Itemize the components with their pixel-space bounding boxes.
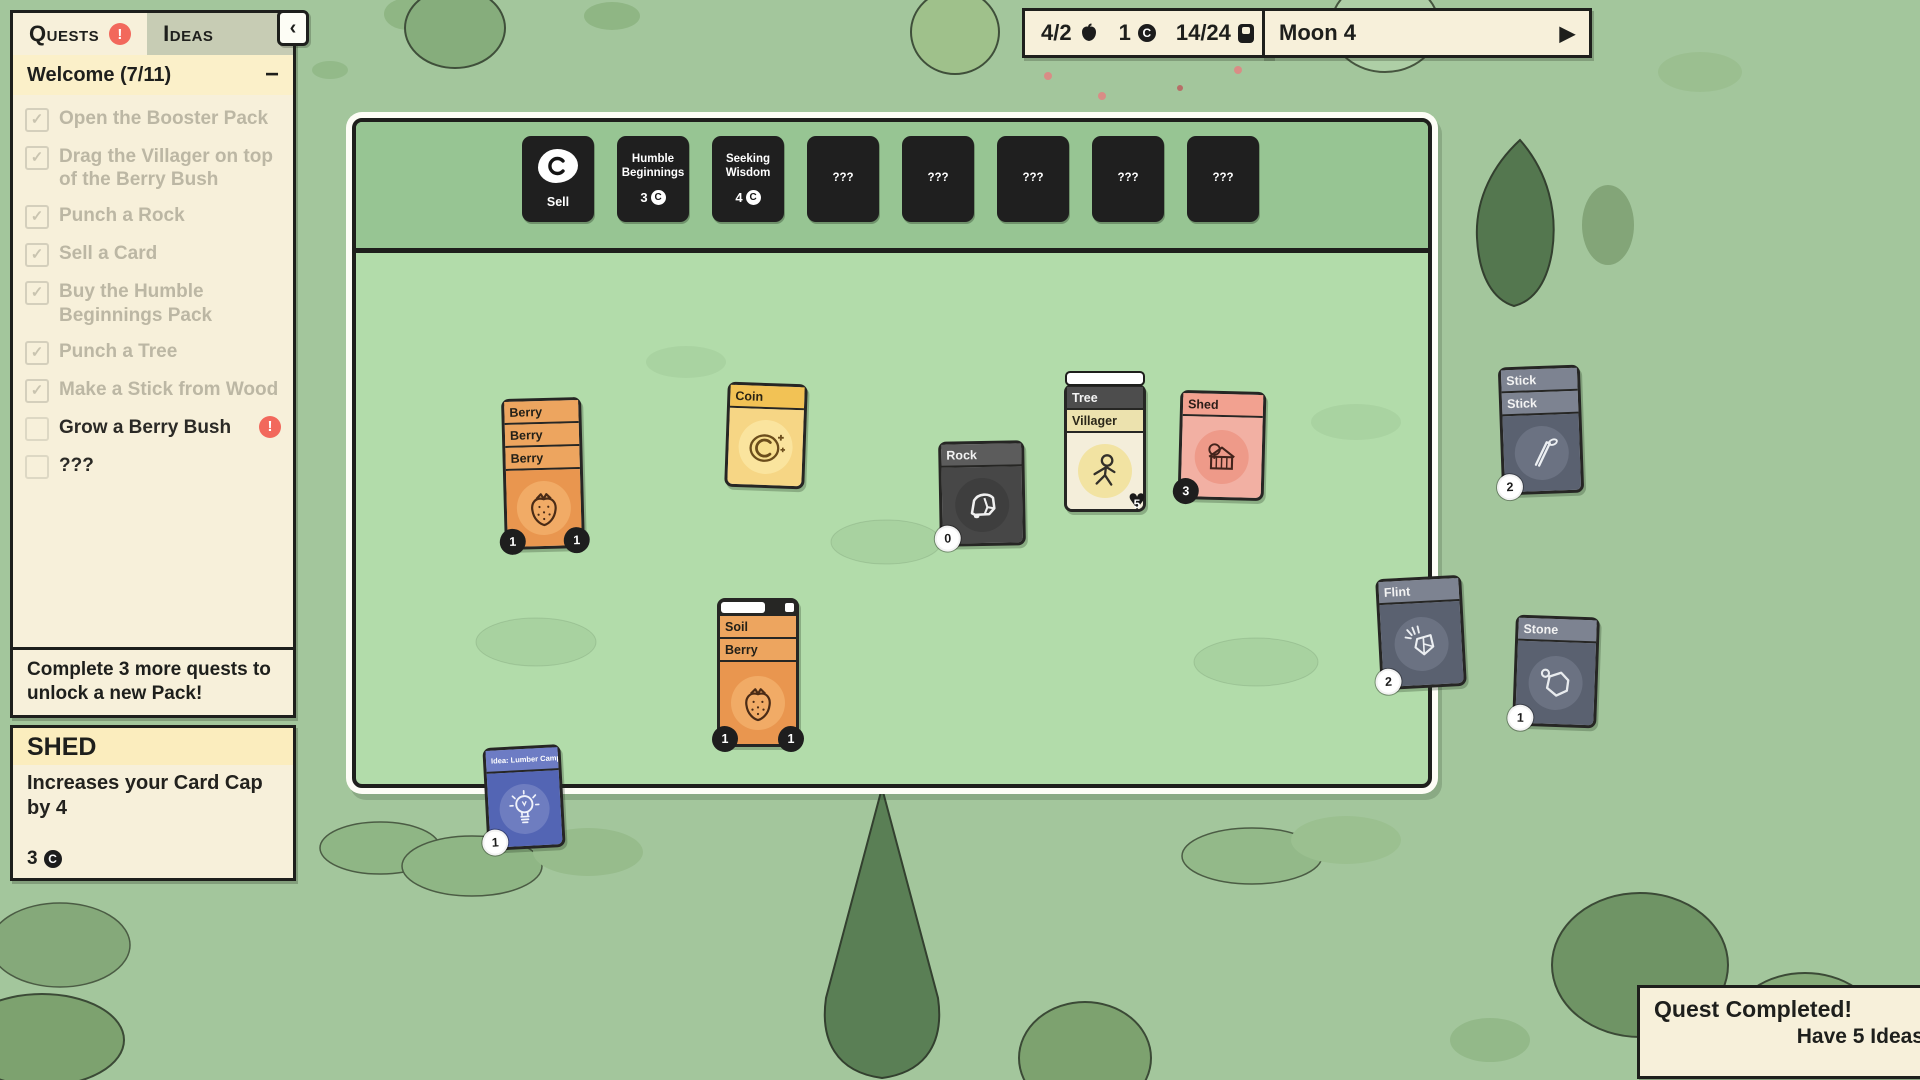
- pack-cost: 3 C: [640, 190, 665, 205]
- card-title: Berry: [504, 400, 579, 425]
- stat-card-cap-value: 14/24: [1176, 20, 1231, 46]
- quest-item-active: ???: [25, 454, 281, 479]
- card-cap-icon: [1238, 24, 1254, 43]
- quest-label: Punch a Rock: [59, 204, 185, 229]
- tab-ideas-label: Ideas: [163, 21, 213, 47]
- checkbox-checked-icon: ✓: [25, 281, 49, 305]
- pack-name: Humble Beginnings: [617, 153, 689, 181]
- resource-stats-bar: 4/2 1 C 14/24: [1022, 8, 1273, 58]
- checkbox-checked-icon: ✓: [25, 205, 49, 229]
- pack-locked-2[interactable]: ???: [902, 136, 974, 222]
- quest-label: ???: [59, 454, 94, 479]
- quest-label: Make a Stick from Wood: [59, 378, 278, 403]
- pack-locked-3[interactable]: ???: [997, 136, 1069, 222]
- card-stone[interactable]: Stone 1: [1512, 615, 1600, 729]
- card-body: 1 1: [506, 469, 582, 547]
- moon-timer-bar: Moon 4 ▶: [1262, 8, 1592, 58]
- coin-icon: C: [651, 190, 666, 205]
- quest-tabs: Quests ! Ideas: [13, 13, 293, 55]
- quest-group-header[interactable]: Welcome (7/11) −: [13, 55, 293, 95]
- quest-label: Open the Booster Pack: [59, 107, 268, 132]
- card-body: [727, 408, 804, 487]
- checkbox-empty-icon: [25, 455, 49, 479]
- stat-cards: 4/2: [1041, 20, 1099, 46]
- chevron-left-icon: ‹: [290, 17, 297, 40]
- pack-name: ???: [923, 172, 952, 186]
- game-board: Sell Humble Beginnings 3 C Seeking Wisdo…: [352, 118, 1432, 788]
- coin-icon: [742, 423, 790, 471]
- tab-ideas[interactable]: Ideas: [147, 13, 293, 55]
- quest-completed-toast: X Quest Completed! Have 5 Ideas: [1637, 985, 1920, 1079]
- coin-icon: C: [44, 850, 62, 868]
- card-title: Rock: [941, 443, 1021, 467]
- quest-item: ✓ Punch a Tree: [25, 340, 281, 365]
- coin-icon: C: [1138, 24, 1156, 42]
- card-body: 1 1: [720, 662, 796, 744]
- pack-row-band: Sell Humble Beginnings 3 C Seeking Wisdo…: [356, 122, 1428, 253]
- villager-icon: [1082, 448, 1128, 494]
- villager-health-badge: ♥ 5: [1123, 492, 1151, 518]
- card-body: ♥ 5: [1067, 433, 1143, 509]
- card-title: Stone: [1518, 618, 1597, 644]
- card-soil-berry-stack[interactable]: Soil Berry 1 1: [717, 598, 799, 747]
- stat-coins: 1 C: [1119, 20, 1156, 46]
- card-title: Berry: [505, 423, 580, 448]
- card-art-circle: [731, 676, 785, 730]
- card-title: Berry: [505, 446, 580, 471]
- quest-panel: Quests ! Ideas Welcome (7/11) − ✓ Open t…: [10, 10, 296, 718]
- card-title: Villager: [1067, 410, 1143, 433]
- quest-item: ✓ Drag the Villager on top of the Berry …: [25, 145, 281, 191]
- card-body: 1: [487, 770, 563, 848]
- pack-name: ???: [1113, 172, 1142, 186]
- card-rock[interactable]: Rock 0: [938, 440, 1026, 546]
- card-info-description: Increases your Card Cap by 4: [13, 765, 293, 848]
- card-tree-villager-stack[interactable]: Tree Villager ♥ 5: [1064, 384, 1146, 512]
- card-count-badge: 1: [712, 726, 738, 752]
- card-flint[interactable]: Flint 2: [1375, 575, 1467, 690]
- card-berry-stack[interactable]: Berry Berry Berry 1 1: [501, 397, 585, 550]
- card-title: Soil: [720, 616, 796, 639]
- harvest-progress-bar: [1065, 371, 1145, 386]
- strawberry-icon: [521, 485, 566, 530]
- pack-locked-4[interactable]: ???: [1092, 136, 1164, 222]
- quest-footer-message: Complete 3 more quests to unlock a new P…: [13, 647, 293, 715]
- quest-label: Punch a Tree: [59, 340, 177, 365]
- pack-name: ???: [828, 172, 857, 186]
- checkbox-checked-icon: ✓: [25, 243, 49, 267]
- pack-humble-beginnings[interactable]: Humble Beginnings 3 C: [617, 136, 689, 222]
- sell-pile-card[interactable]: Sell: [522, 136, 594, 222]
- card-title: Coin: [730, 385, 805, 411]
- checkbox-checked-icon: ✓: [25, 341, 49, 365]
- card-idea-lumber-camp[interactable]: Idea: Lumber Camp 1: [482, 744, 565, 851]
- stat-coins-value: 1: [1119, 20, 1131, 46]
- pack-cost: 4 C: [735, 190, 760, 205]
- card-value-badge: 1: [778, 726, 804, 752]
- pack-cost-value: 4: [735, 190, 742, 205]
- alert-icon: !: [109, 23, 131, 45]
- card-body: 3: [1181, 416, 1263, 498]
- card-body: 2: [1380, 601, 1464, 687]
- alert-icon: !: [259, 416, 281, 438]
- quest-label: Drag the Villager on top of the Berry Bu…: [59, 145, 281, 191]
- tab-quests[interactable]: Quests !: [13, 13, 147, 55]
- quest-list: ✓ Open the Booster Pack ✓ Drag the Villa…: [13, 95, 293, 647]
- coin-icon: C: [746, 190, 761, 205]
- price-value: 3: [27, 848, 38, 870]
- coin-c-icon: [545, 153, 571, 179]
- stat-cards-value: 4/2: [1041, 20, 1072, 46]
- card-title: Tree: [1067, 387, 1143, 410]
- quest-item: ✓ Buy the Humble Beginnings Pack: [25, 280, 281, 326]
- card-title: Shed: [1183, 393, 1264, 418]
- sell-pile-label: Sell: [547, 195, 569, 209]
- food-icon: [1079, 23, 1099, 43]
- quest-group-title: Welcome (7/11): [27, 64, 171, 87]
- card-body: 1: [1515, 641, 1596, 726]
- checkbox-checked-icon: ✓: [25, 146, 49, 170]
- card-art-circle: [1393, 616, 1450, 673]
- health-value: 5: [1123, 492, 1151, 518]
- pack-name: ???: [1208, 172, 1237, 186]
- progress-chip-icon: [785, 603, 794, 612]
- play-moon-button[interactable]: ▶: [1560, 21, 1575, 46]
- pack-name: Seeking Wisdom: [712, 153, 784, 181]
- card-art-circle: [498, 783, 551, 836]
- quest-item: ✓ Open the Booster Pack: [25, 107, 281, 132]
- progress-fill: [721, 602, 765, 613]
- pack-locked-1[interactable]: ???: [807, 136, 879, 222]
- pack-cost-value: 3: [640, 190, 647, 205]
- flint-icon: [1397, 620, 1445, 668]
- pack-locked-5[interactable]: ???: [1187, 136, 1259, 222]
- growth-progress-bar: [720, 601, 796, 616]
- card-art-circle: [1194, 429, 1249, 484]
- pack-seeking-wisdom[interactable]: Seeking Wisdom 4 C: [712, 136, 784, 222]
- card-art-circle: [1528, 655, 1584, 711]
- card-title: Stick: [1502, 391, 1579, 417]
- collapse-panel-button[interactable]: ‹: [277, 10, 309, 46]
- stone-icon: [1532, 659, 1580, 707]
- card-art-circle: [955, 478, 1010, 533]
- card-stick-stack[interactable]: Stick Stick 2: [1498, 365, 1584, 496]
- quest-item-active: Grow a Berry Bush !: [25, 416, 281, 441]
- card-info-panel: SHED Increases your Card Cap by 4 3 C: [10, 725, 296, 881]
- collapse-group-button[interactable]: −: [265, 61, 279, 89]
- stacklands-game-screen: Sell Humble Beginnings 3 C Seeking Wisdo…: [0, 0, 1920, 1080]
- shed-icon: [1198, 433, 1245, 480]
- checkbox-empty-icon: [25, 417, 49, 441]
- card-info-title: SHED: [13, 728, 293, 765]
- quest-label: Grow a Berry Bush: [59, 416, 231, 441]
- card-title: Berry: [720, 639, 796, 662]
- stat-card-cap: 14/24: [1176, 20, 1254, 46]
- card-body: 2: [1502, 414, 1581, 493]
- rock-icon: [959, 482, 1006, 529]
- card-coin[interactable]: Coin: [724, 382, 808, 490]
- card-info-price: 3 C: [13, 848, 293, 878]
- card-title: Stick: [1501, 368, 1578, 394]
- quest-item: ✓ Punch a Rock: [25, 204, 281, 229]
- card-art-circle: [516, 480, 571, 535]
- toast-subtitle: Have 5 Ideas: [1654, 1025, 1920, 1049]
- checkbox-checked-icon: ✓: [25, 108, 49, 132]
- checkbox-checked-icon: ✓: [25, 379, 49, 403]
- card-body: 0: [942, 466, 1023, 543]
- moon-label: Moon 4: [1279, 20, 1356, 46]
- card-art-circle: [1514, 425, 1570, 481]
- tab-quests-label: Quests: [29, 21, 99, 47]
- strawberry-icon: [736, 681, 780, 725]
- toast-title: Quest Completed!: [1654, 996, 1920, 1023]
- quest-label: Buy the Humble Beginnings Pack: [59, 280, 281, 326]
- card-art-circle: [738, 419, 794, 475]
- quest-label: Sell a Card: [59, 242, 157, 267]
- stick-icon: [1518, 429, 1566, 477]
- quest-item: ✓ Sell a Card: [25, 242, 281, 267]
- quest-item: ✓ Make a Stick from Wood: [25, 378, 281, 403]
- pack-name: ???: [1018, 172, 1047, 186]
- card-shed[interactable]: Shed 3: [1178, 390, 1267, 501]
- lightbulb-icon: [503, 787, 547, 831]
- coin-blob-icon: [538, 149, 578, 183]
